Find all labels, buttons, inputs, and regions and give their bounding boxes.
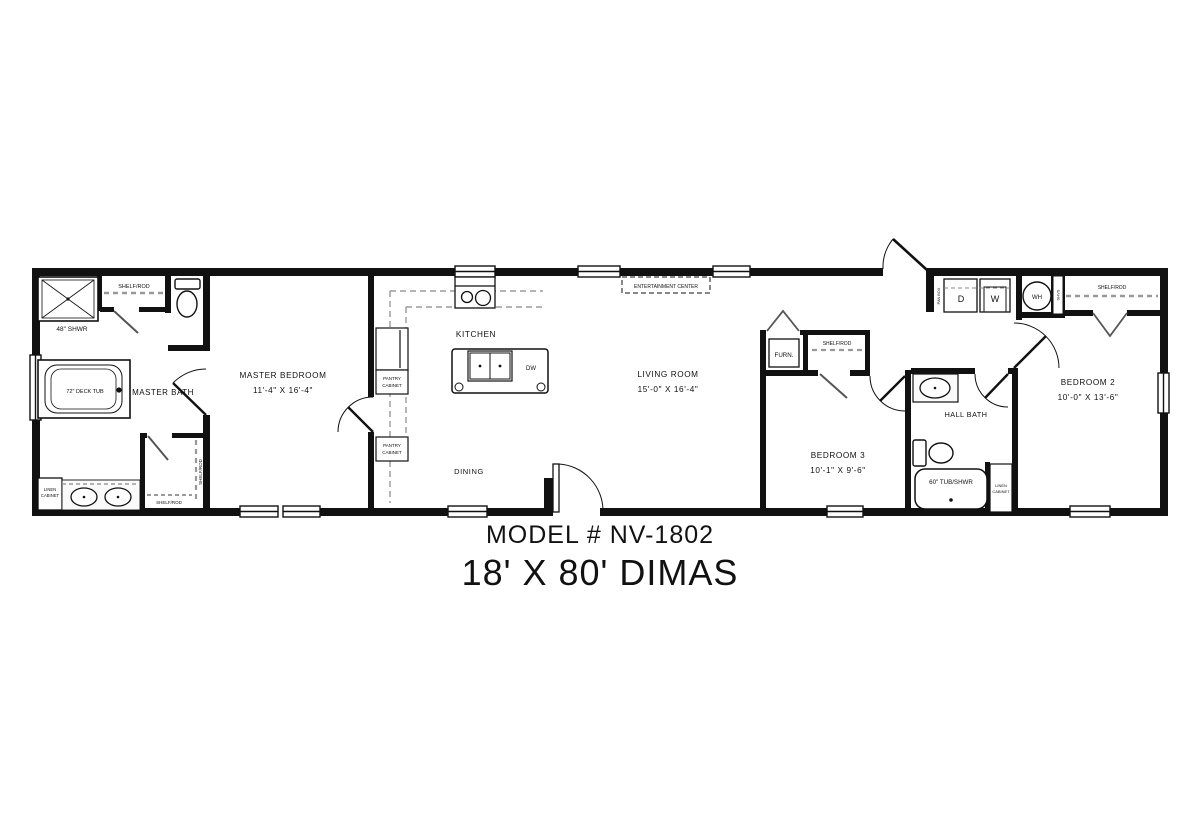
linen2-label-2: CABINET xyxy=(992,489,1010,494)
window-dining xyxy=(448,506,487,517)
toilet-hall xyxy=(913,440,953,466)
bedroom2-door xyxy=(1014,323,1059,368)
dryer-label: D xyxy=(958,294,965,304)
wall-wic-top-a xyxy=(140,433,147,438)
wic-door xyxy=(148,436,168,460)
master-bedroom: MASTER BEDROOM 11'-4" X 16'-4" xyxy=(239,371,373,432)
wall-bottom-3 xyxy=(487,508,553,516)
front-door xyxy=(544,464,603,512)
wall-masterbath-east-top xyxy=(203,275,210,351)
wall-bottom-4 xyxy=(600,508,827,516)
bedroom2-label: BEDROOM 2 xyxy=(1061,378,1116,387)
wall-toilet-compartment xyxy=(168,345,208,351)
deck-tub-label: 72" DECK TUB xyxy=(66,389,104,395)
bedroom3-label: BEDROOM 3 xyxy=(811,451,866,460)
window-master-bedroom-1 xyxy=(240,506,278,517)
floor-plan-page: 48" SHWR SHELF/ROD 72" DECK TUB MASTER B… xyxy=(0,0,1200,818)
kitchen-label: KITCHEN xyxy=(456,330,496,339)
window-master-bedroom-2 xyxy=(283,506,320,517)
bedroom2-closet-label: SHELF/ROD xyxy=(1098,285,1127,291)
panel-box-label: PAN BOX xyxy=(937,287,941,304)
wall-mb-closet-bottom-b xyxy=(139,307,171,312)
wic-shelf-rod-bottom: SHELF/ROD xyxy=(156,500,183,505)
hall-bath-sink xyxy=(913,374,958,402)
master-bedroom-label: MASTER BEDROOM xyxy=(239,371,326,380)
shower-48 xyxy=(38,277,98,321)
pantry2-label-2: CABINET xyxy=(382,450,402,455)
hall-closet: SHELF/ROD xyxy=(812,341,863,398)
wall-right-1 xyxy=(1160,268,1168,373)
master-bath: 48" SHWR SHELF/ROD 72" DECK TUB MASTER B… xyxy=(38,277,206,510)
window-living-right xyxy=(713,266,750,277)
refrigerator xyxy=(376,328,408,370)
wall-mbr-east-bottom xyxy=(368,432,374,516)
wall-mb-closet-bottom-a xyxy=(100,307,114,312)
window-bedroom-3 xyxy=(827,506,863,517)
tub-shower-label: 60" TUB/SHWR xyxy=(929,479,973,486)
wall-bedroom3-hallbath xyxy=(905,370,911,516)
wall-hallcloset-right xyxy=(865,330,870,376)
washer-label: W xyxy=(991,294,1000,304)
living-room-dims: 15'-0" X 16'-4" xyxy=(638,385,699,394)
tub-shower-60: 60" TUB/SHWR xyxy=(915,469,987,509)
plan-name: 18' X 80' DIMAS xyxy=(0,552,1200,594)
dishwasher-label: DW xyxy=(526,366,536,372)
mb-closet-door xyxy=(114,311,138,333)
title-block: MODEL # NV-1802 18' X 80' DIMAS xyxy=(0,521,1200,594)
kitchen: PANTRY CABINET PANTRY CABINET KITCHEN DW xyxy=(376,277,603,512)
wall-living-bedroom3 xyxy=(760,330,766,516)
wall-furn-closet-divider xyxy=(803,330,808,372)
water-heater: WH xyxy=(1023,282,1051,310)
wall-hallbath-top-a xyxy=(911,368,975,374)
wall-top-2 xyxy=(495,268,578,276)
wall-bottom-2 xyxy=(320,508,448,516)
wall-right-2 xyxy=(1160,413,1168,516)
dryer: D xyxy=(944,279,977,312)
wall-bedroom3-top-a xyxy=(760,370,818,376)
wall-wic-top-b xyxy=(172,433,208,438)
hall-bath: HALL BATH 60" TUB/SHWR LINEN CABINET xyxy=(913,374,1012,512)
model-number: MODEL # NV-1802 xyxy=(0,521,1200,550)
front-door-leaf xyxy=(553,464,559,512)
wall-mbr-east-top xyxy=(368,275,374,397)
wall-bedroom3-top-b xyxy=(850,370,868,376)
furnace-bifold-door xyxy=(767,311,799,331)
wall-bottom-6 xyxy=(1110,508,1165,516)
bedroom3-door xyxy=(870,376,905,411)
bedroom-3: BEDROOM 3 10'-1" X 9'-6" xyxy=(810,451,866,475)
hall-closet-door xyxy=(820,374,847,398)
water-heater-label: WH xyxy=(1032,295,1042,301)
entertainment-center-label: ENTERTAINMENT CENTER xyxy=(634,284,698,290)
window-living-left xyxy=(578,266,620,277)
floor-plan-drawing: 48" SHWR SHELF/ROD 72" DECK TUB MASTER B… xyxy=(0,0,1200,818)
linen-cabinet-master: LINEN CABINET xyxy=(38,478,62,510)
linen-label-1: LINEN xyxy=(44,487,56,492)
range xyxy=(455,277,495,308)
wall-hallcloset-top xyxy=(800,330,870,335)
wall-top-5 xyxy=(927,268,1165,276)
bedroom2-closet-door xyxy=(1093,313,1127,336)
vanity-double-sink xyxy=(62,480,140,510)
dining-label: DINING xyxy=(454,467,484,476)
wall-b2-closet-bottom-a xyxy=(1065,310,1093,316)
hall-bath-door xyxy=(975,374,1008,407)
wall-bedroom2-west xyxy=(1012,368,1018,516)
bedroom2-dims: 10'-0" X 13'-6" xyxy=(1058,393,1119,402)
window-bedroom-2-bottom xyxy=(1070,506,1110,517)
linen2-label-1: LINEN xyxy=(995,483,1007,488)
pantry1-label-1: PANTRY xyxy=(383,376,401,381)
bedroom3-dims: 10'-1" X 9'-6" xyxy=(810,466,866,475)
wall-utility-stub xyxy=(926,270,934,312)
hall-area: FURN. SHELF/ROD xyxy=(767,311,905,411)
hall-bath-label: HALL BATH xyxy=(945,410,988,419)
toilet-master xyxy=(175,279,200,317)
wall-b2-closet-bottom-b xyxy=(1127,310,1161,316)
shelves-strip: SHVS xyxy=(1053,276,1063,314)
linen-label-2: CABINET xyxy=(41,493,60,498)
window-kitchen xyxy=(455,266,495,277)
wall-top-3 xyxy=(620,268,713,276)
shelves-label: SHVS xyxy=(1056,289,1061,300)
furnace-label: FURN. xyxy=(775,352,794,359)
furnace-closet: FURN. xyxy=(767,311,799,367)
pantry2-label-1: PANTRY xyxy=(383,443,401,448)
wall-wic-left xyxy=(140,433,145,513)
master-bath-label: MASTER BATH xyxy=(132,388,194,397)
linen-cabinet-hall: LINEN CABINET xyxy=(990,464,1012,512)
pantry1-label-2: CABINET xyxy=(382,383,402,388)
front-door-swing xyxy=(559,464,603,511)
pantry-cabinet-1: PANTRY CABINET xyxy=(376,370,408,394)
master-bedroom-door xyxy=(338,397,373,432)
washer: W xyxy=(980,279,1010,312)
walk-in-closet: SHELF/ROD SHELF/ROD xyxy=(147,436,203,505)
shower-label: 48" SHWR xyxy=(56,326,88,333)
wall-top-4 xyxy=(750,268,883,276)
wall-masterbath-east-bottom xyxy=(203,415,210,516)
master-bedroom-dims: 11'-4" X 16'-4" xyxy=(253,386,313,395)
wic-shelf-rod-vertical: SHELF/ROD xyxy=(198,458,203,485)
mb-closet-label: SHELF/ROD xyxy=(118,284,150,290)
utility-area: PAN BOX D W WH SHVS xyxy=(937,276,1063,314)
pantry-cabinet-2: PANTRY CABINET xyxy=(376,437,408,461)
window-bedroom-2-right xyxy=(1158,373,1169,413)
hall-closet-label: SHELF/ROD xyxy=(823,341,852,347)
wall-top-1 xyxy=(35,268,455,276)
back-door xyxy=(883,239,927,270)
front-door-jamb xyxy=(544,478,553,512)
living-room-label: LIVING ROOM xyxy=(637,370,698,379)
